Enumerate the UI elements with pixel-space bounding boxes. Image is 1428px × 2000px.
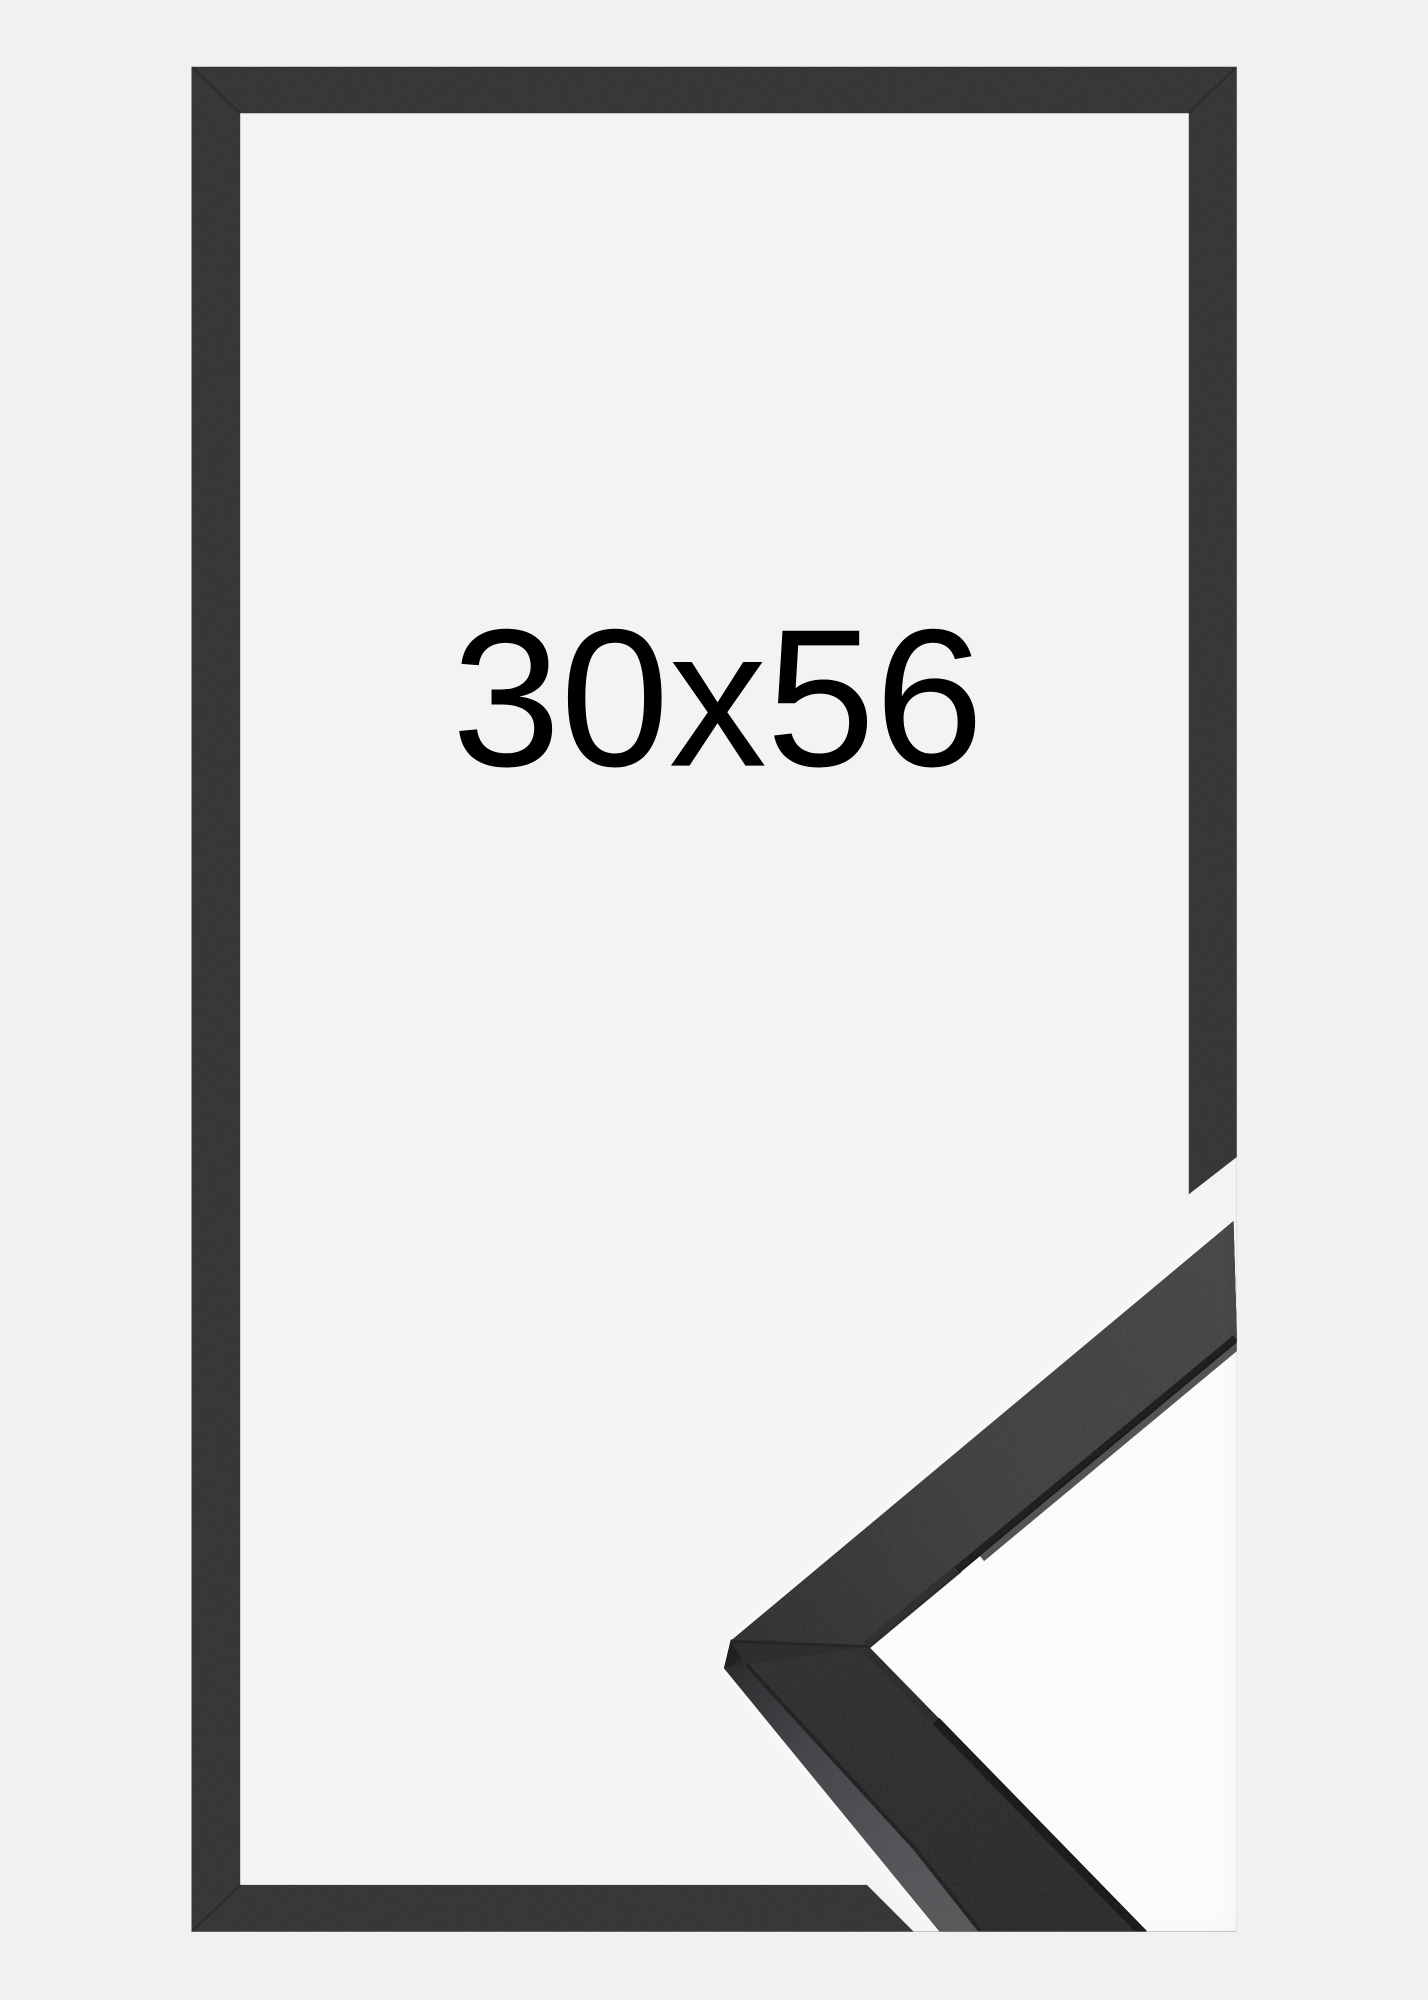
svg-text:30x56: 30x56 [452, 589, 984, 808]
